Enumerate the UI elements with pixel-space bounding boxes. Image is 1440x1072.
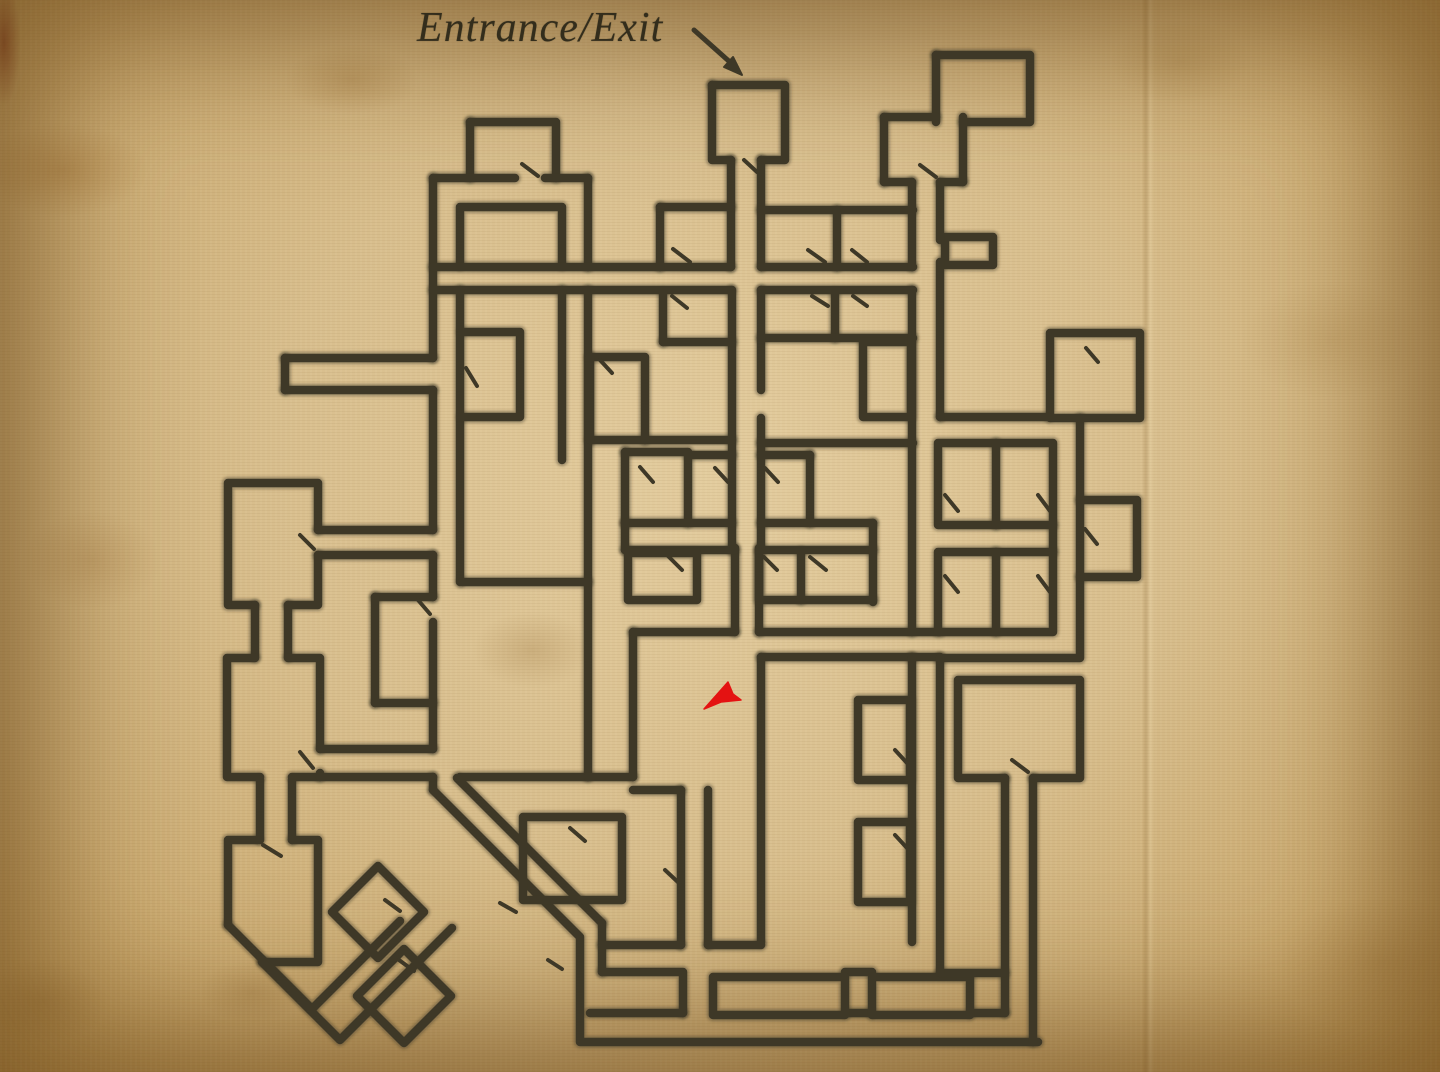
wall-segment	[712, 85, 785, 160]
wall-segment	[460, 207, 562, 265]
wall-segment	[628, 553, 697, 600]
wall-segment	[936, 55, 1030, 122]
wall-segment	[1080, 500, 1137, 577]
door-tick	[1085, 529, 1097, 544]
door-tick	[810, 557, 826, 570]
door-tick	[300, 752, 313, 768]
door-tick	[812, 296, 828, 306]
door-tick	[300, 535, 314, 549]
door-tick	[385, 900, 400, 911]
wall-segment	[460, 207, 562, 265]
wall-segment	[945, 237, 993, 265]
entrance-exit-label: Entrance/Exit	[417, 4, 663, 52]
door-tick	[853, 296, 867, 306]
door-tick	[1086, 348, 1098, 362]
wall-segment	[288, 658, 320, 749]
wall-segment	[1050, 333, 1140, 418]
wall-segment	[628, 553, 697, 600]
wall-segment	[1080, 500, 1137, 577]
wall-segment	[262, 840, 318, 962]
door-tick	[522, 164, 538, 176]
door-tick	[945, 495, 958, 511]
wall-segment	[228, 840, 258, 925]
entrance-arrow-icon	[694, 30, 742, 75]
wall-segment	[262, 840, 318, 962]
player-marker-icon	[704, 682, 741, 709]
door-tick	[500, 903, 516, 912]
door-tick	[673, 249, 690, 262]
door-tick	[263, 845, 281, 856]
wall-segment	[228, 483, 318, 605]
wall-segment	[712, 85, 785, 160]
wall-segment	[1050, 333, 1140, 418]
dungeon-map-screen: Entrance/Exit	[0, 0, 1440, 1072]
wall-segment	[228, 483, 318, 605]
wall-segment	[590, 357, 645, 440]
door-tick	[466, 368, 477, 386]
wall-segment	[759, 552, 873, 600]
door-tick	[920, 165, 936, 177]
door-tick	[672, 296, 687, 308]
wall-segment	[863, 342, 911, 417]
wall-segment	[863, 342, 911, 417]
wall-segment	[858, 700, 910, 780]
wall-segment	[936, 55, 1030, 122]
door-tick	[1012, 760, 1028, 772]
maze-canvas	[0, 0, 1440, 1072]
door-tick	[764, 557, 777, 570]
door-tick	[548, 960, 562, 969]
wall-segment	[590, 357, 645, 440]
wall-segment	[759, 552, 873, 600]
wall-segment	[858, 822, 910, 902]
wall-segment	[470, 122, 556, 178]
wall-segment	[227, 658, 260, 777]
wall-segment	[872, 977, 970, 1015]
door-tick	[808, 250, 825, 262]
door-tick	[852, 250, 867, 262]
wall-segment	[858, 700, 910, 780]
wall-segment	[713, 977, 845, 1015]
door-tick	[570, 828, 585, 841]
wall-segment	[625, 452, 688, 523]
wall-segment	[712, 85, 731, 160]
wall-segment	[625, 452, 688, 523]
wall-segment	[288, 555, 318, 605]
wall-segment	[470, 122, 556, 178]
door-tick	[640, 467, 653, 482]
door-tick	[945, 576, 958, 592]
wall-segment	[858, 822, 910, 902]
